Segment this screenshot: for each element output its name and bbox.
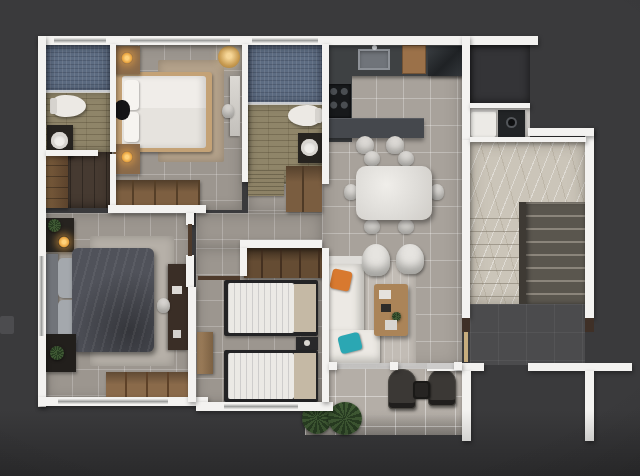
nightstand-decor (304, 340, 310, 346)
dryer-door (506, 117, 517, 128)
table-lamp-glow (121, 52, 133, 64)
window-bedroom1 (130, 38, 230, 43)
door-twin-bedroom (198, 276, 240, 280)
sliding-door-post (454, 362, 462, 370)
closet-cabinet (46, 154, 68, 208)
side-table (413, 381, 430, 399)
duct-void (470, 45, 530, 103)
lounge-chair (388, 369, 416, 409)
wall-kitchen-right (462, 36, 470, 140)
coffee-table-tray (385, 320, 397, 330)
stair-upper-flight (526, 202, 585, 304)
wall-entry-stub-left (462, 371, 471, 441)
dining-chair (364, 151, 380, 166)
wardrobe (244, 248, 322, 278)
stair-stringer (519, 202, 526, 304)
desk-papers (172, 286, 182, 294)
wall-bathroom2-right (322, 44, 329, 184)
toilet-tank (315, 108, 322, 123)
throw-pillow-orange (329, 268, 353, 292)
shower-glass (46, 90, 110, 93)
kitchen-island (326, 118, 424, 138)
doorframe-stair-left (462, 318, 470, 332)
toilet-tank (50, 98, 57, 114)
armchair (396, 244, 424, 274)
linen-closet (286, 166, 322, 212)
desk-papers (173, 330, 181, 338)
washbasin (301, 139, 318, 156)
fridge (428, 46, 462, 76)
stool (222, 104, 234, 118)
desk-chair (157, 298, 170, 313)
cooktop (327, 84, 351, 118)
table-lamp-glow (58, 236, 70, 248)
armchair (362, 244, 390, 276)
bag-on-bed (114, 100, 130, 120)
twin-bed-blanket (294, 284, 316, 332)
headboard (46, 254, 58, 346)
twin-bed-blanket (294, 353, 316, 399)
cutting-board (402, 45, 426, 74)
shower-floor (248, 44, 322, 104)
dining-chair (398, 219, 414, 234)
duvet-dark (72, 248, 154, 352)
wall-master-twin-divider (188, 287, 196, 402)
washbasin (51, 132, 68, 149)
plant (48, 219, 61, 232)
wall-utility-bottom (470, 137, 586, 142)
door-master-bedroom (188, 224, 192, 256)
wall-stair-left (462, 140, 470, 318)
twin-bed-duvet (228, 353, 294, 399)
lounge-chair (428, 369, 456, 406)
pendant-lamp (218, 46, 240, 68)
dining-table (356, 166, 432, 220)
wall-bathroom1-right (110, 44, 116, 152)
coffee-table-book (381, 304, 391, 312)
table-lamp-glow (121, 151, 133, 163)
wall-entry-corridor-right (528, 363, 632, 371)
door-entry (464, 332, 468, 362)
wall-stair-right (585, 128, 594, 318)
wall-twin-top (240, 240, 322, 248)
twin-bed-duvet (228, 283, 294, 333)
wardrobe (106, 372, 190, 400)
wall-utility-top (470, 103, 530, 108)
dining-chair (398, 151, 414, 166)
window-bathroom1 (54, 38, 106, 43)
palm-plant (328, 402, 362, 435)
washing-machine (471, 109, 496, 137)
wall-bathroom2-left (242, 44, 248, 182)
kitchen-sink (358, 49, 390, 70)
faucet (372, 45, 377, 50)
wall-closet-right (110, 154, 116, 208)
wall-bedroom1-bottom (108, 205, 206, 213)
doormat (248, 170, 284, 196)
dresser (197, 332, 213, 374)
dining-chair (364, 219, 380, 234)
entry-landing-floor (470, 304, 585, 365)
dining-chair (430, 184, 444, 200)
sliding-door-post (390, 362, 398, 370)
window-bathroom2 (252, 38, 318, 43)
plant (50, 346, 64, 360)
wall-entry-stub-right (585, 371, 594, 441)
shower-floor (46, 44, 110, 92)
window-master-left (39, 256, 44, 336)
wall-exterior-left (38, 36, 46, 407)
wall-twin-living-divider (322, 248, 329, 402)
wall-twin-entry-stub (240, 248, 247, 276)
floor-plan-canvas (0, 0, 640, 476)
exterior-ledge (0, 316, 14, 334)
wall-bathroom1-closet (46, 150, 98, 156)
sliding-door-post (329, 362, 337, 370)
doorframe-stair-right (585, 318, 594, 332)
stair-lower-flight (470, 218, 519, 304)
window-master-bottom (58, 399, 168, 404)
window-twin-bottom (224, 404, 298, 409)
coffee-table-book (379, 290, 391, 299)
wall-corridor (186, 255, 194, 287)
wall-stair-top (528, 128, 594, 136)
